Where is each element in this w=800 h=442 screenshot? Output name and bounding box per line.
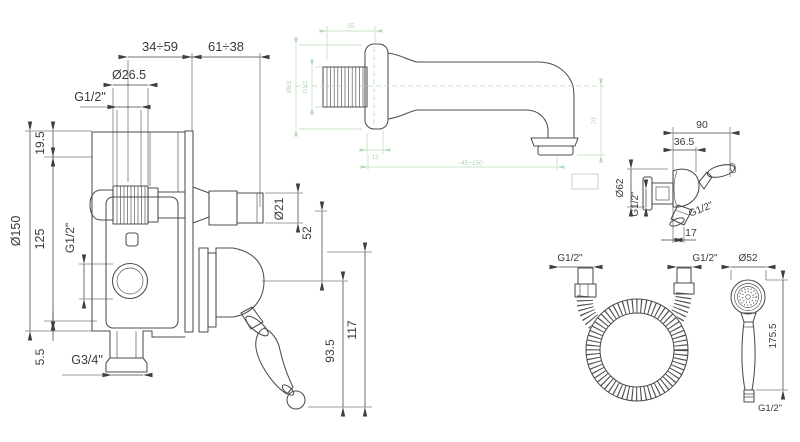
- dim-lever-drop: 93.5: [323, 339, 337, 363]
- handle-trim-plate: [199, 248, 208, 332]
- diverter-thread: [113, 186, 148, 224]
- dim-hose-right-thread: G1/2": [692, 253, 718, 264]
- dim-holder-depth: 36.5: [674, 136, 695, 148]
- dim-cap-diameter: Ø26.5: [112, 68, 146, 82]
- technical-drawing-sheet: 34÷59 61÷38 Ø26.5 G1/2" 19.5 Ø150 125 G1…: [0, 0, 800, 442]
- handle-ball-end: [287, 391, 305, 409]
- diverter-stem: [237, 193, 263, 223]
- diverter-barrel: [209, 191, 237, 225]
- dim-spout-reach: ~45÷150: [457, 160, 483, 167]
- handshower-view: Ø52 175.5 G1/2": [731, 253, 788, 414]
- dim-side-thread: G1/2": [63, 223, 77, 253]
- hose-right-tube: [677, 268, 691, 283]
- dim-handshower-thread: G1/2": [758, 403, 782, 414]
- handshower-fitting: [744, 390, 754, 402]
- side-port-inner: [117, 268, 143, 294]
- spout-side-view: 55 Ø63 G1/2 12 ~45÷150 70: [286, 23, 605, 170]
- diverter-cap: [90, 190, 113, 220]
- shower-holder-view: 90 36.5 Ø62 G1/2" G1/2" 17: [615, 119, 737, 243]
- holder-wall-cylinder: [652, 183, 673, 204]
- holder-escutcheon: [643, 177, 652, 210]
- dim-holder-wall-thread: G1/2": [630, 191, 641, 217]
- dim-top-offset: 19.5: [33, 131, 47, 155]
- dim-top-thread: G1/2": [74, 90, 106, 104]
- diverter-button-hole: [126, 233, 138, 246]
- diverter-cylinder: [158, 192, 185, 218]
- handshower-nozzle-ring-inner: [743, 292, 754, 303]
- handle-stem: [241, 307, 263, 329]
- handshower-handle: [742, 322, 755, 390]
- handle-escutcheon: [208, 253, 216, 327]
- mixer-body-bottom-step: [143, 331, 185, 337]
- dim-spout-top-length: 55: [347, 23, 355, 30]
- dim-spout-drop: 70: [591, 117, 598, 125]
- hose-left-nut: [575, 284, 596, 297]
- bottom-port: [106, 331, 147, 372]
- dim-depth-range-1: 34÷59: [142, 39, 178, 54]
- dim-depth-range-2: 61÷38: [208, 39, 244, 54]
- dim-holder-outlet-offset: 17: [685, 227, 697, 239]
- dim-center-height: 125: [33, 229, 47, 250]
- mixer-side-view: 34÷59 61÷38 Ø26.5 G1/2" 19.5 Ø150 125 G1…: [9, 39, 372, 409]
- dim-holder-width: 90: [696, 119, 708, 131]
- handshower-face-ring: [738, 287, 759, 308]
- holder-body: [673, 169, 699, 207]
- shower-hose-view: G1/2" G1/2": [557, 253, 718, 401]
- dim-stem-diameter: Ø21: [272, 197, 286, 220]
- handshower-head-outer: [731, 280, 765, 314]
- wall-plate: [185, 131, 193, 332]
- spout-body-bottom: [388, 110, 548, 138]
- dim-handshower-length: 175.5: [768, 323, 779, 348]
- handle-dome: [216, 248, 264, 317]
- hose-coil-ribs: [593, 306, 681, 394]
- spout-body-top: [388, 53, 574, 138]
- hose-coil-inner: [600, 313, 674, 387]
- hose-left-tube: [578, 268, 593, 284]
- dim-spout-flange-depth: 12: [371, 154, 379, 161]
- revision-box: [572, 174, 598, 189]
- dim-hose-left-thread: G1/2": [557, 253, 583, 264]
- handshower-nozzle-ring-outer: [740, 289, 757, 306]
- side-port-outer: [113, 264, 148, 299]
- holder-lever-cone: [699, 172, 712, 189]
- dim-spout-flange-diameter: Ø63: [286, 80, 293, 93]
- dim-holder-flange-diameter: Ø62: [615, 178, 626, 197]
- dim-total-drop: 117: [345, 320, 359, 339]
- spout-aerator: [538, 146, 573, 155]
- diverter-collar: [148, 188, 158, 222]
- dim-holder-outlet-thread: G1/2": [687, 200, 715, 220]
- hose-right-nut: [674, 283, 694, 294]
- drawing-canvas: 34÷59 61÷38 Ø26.5 G1/2" 19.5 Ø150 125 G1…: [0, 0, 800, 442]
- dim-plate-diameter: Ø150: [9, 216, 23, 247]
- diverter-escutcheon: [193, 187, 209, 223]
- spout-outlet-flare: [531, 138, 578, 146]
- cartridge-housing: [150, 132, 178, 192]
- dim-bottom-offset: 5.5: [33, 348, 47, 365]
- dim-axis-spacing: 52: [300, 226, 314, 240]
- handshower-head-mid: [735, 284, 762, 311]
- mixer-body-left: [92, 132, 110, 331]
- hose-coil-outer: [586, 299, 688, 401]
- dim-bottom-thread: G3/4": [71, 353, 103, 367]
- spout-flange: [365, 44, 388, 129]
- handshower-face-center: [746, 295, 751, 300]
- handle-lever-grip: [256, 328, 293, 394]
- dim-spout-inlet-thread: G1/2: [303, 80, 309, 94]
- dim-handshower-head-diameter: Ø52: [739, 253, 758, 264]
